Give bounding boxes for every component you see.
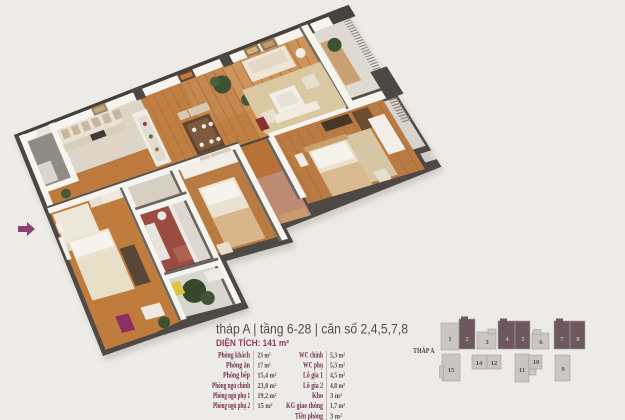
svg-text:1,7 m²: 1,7 m²	[330, 401, 346, 410]
svg-text:14: 14	[476, 360, 483, 367]
svg-text:17 m²: 17 m²	[258, 361, 272, 370]
svg-text:Lô gia 1: Lô gia 1	[303, 371, 323, 380]
svg-text:Phòng bếp: Phòng bếp	[223, 371, 250, 380]
svg-text:4,8 m²: 4,8 m²	[330, 381, 346, 390]
svg-text:Kho: Kho	[312, 391, 323, 400]
svg-text:1: 1	[448, 336, 451, 343]
svg-text:Phòng ăn: Phòng ăn	[226, 361, 250, 370]
svg-text:2: 2	[465, 336, 468, 343]
svg-text:19,2 m²: 19,2 m²	[258, 391, 278, 400]
svg-text:WC phụ: WC phụ	[303, 361, 323, 370]
svg-text:THÁP A: THÁP A	[413, 347, 435, 355]
svg-text:11: 11	[519, 367, 525, 374]
svg-text:15 m²: 15 m²	[258, 401, 274, 410]
svg-text:Tiền phòng: Tiền phòng	[295, 411, 323, 420]
svg-text:DIỆN TÍCH: 141 m²: DIỆN TÍCH: 141 m²	[216, 337, 289, 348]
svg-text:Phòng ngủ chính: Phòng ngủ chính	[212, 381, 250, 390]
svg-text:5,3 m²: 5,3 m²	[330, 361, 346, 370]
svg-text:tháp A | tầng 6-28 | căn số 2,: tháp A | tầng 6-28 | căn số 2,4,5,7,8	[216, 321, 408, 337]
svg-text:15,4 m²: 15,4 m²	[258, 371, 278, 380]
svg-text:23,8 m²: 23,8 m²	[258, 381, 278, 390]
svg-text:4,5 m²: 4,5 m²	[330, 371, 346, 380]
svg-text:23 m²: 23 m²	[258, 350, 272, 359]
svg-text:15: 15	[448, 367, 455, 374]
svg-text:3 m²: 3 m²	[330, 411, 343, 420]
svg-text:Phòng ngủ phụ 1: Phòng ngủ phụ 1	[213, 391, 250, 400]
svg-text:Lô gia 2: Lô gia 2	[303, 381, 323, 390]
svg-text:Phòng khách: Phòng khách	[218, 350, 250, 359]
svg-text:Phòng ngủ phụ 2: Phòng ngủ phụ 2	[213, 401, 250, 410]
svg-text:5,3 m²: 5,3 m²	[330, 350, 346, 359]
svg-text:WC chính: WC chính	[299, 350, 323, 359]
svg-text:KG giao thông: KG giao thông	[286, 401, 323, 410]
svg-text:12: 12	[491, 360, 498, 367]
svg-text:3 m²: 3 m²	[330, 391, 343, 400]
svg-text:10: 10	[533, 359, 540, 366]
